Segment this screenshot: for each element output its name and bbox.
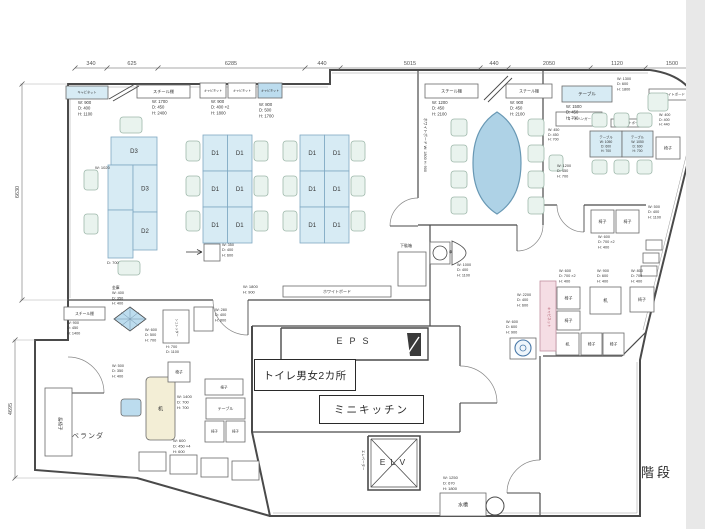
steel-shelf-label: スチール棚 (153, 88, 174, 95)
dim-label: 1120 (611, 61, 623, 67)
annotation: W: 1700D: 450H: 2400 (152, 99, 168, 115)
entry-counter (452, 241, 466, 265)
small-box (170, 455, 197, 474)
door-meeting-west-swing (390, 198, 418, 226)
toilet-label: トイレ男女2カ所 (254, 359, 356, 391)
whiteboard-spare-label: ホワイトボード (323, 288, 351, 294)
annotation: W: 900D: 400 ×2H: 1800 (211, 99, 230, 115)
meeting-table (473, 112, 521, 214)
chair-box-label: 椅子 (565, 294, 573, 300)
desk-D2-label: D2 (141, 229, 149, 235)
table-label: テーブル (218, 405, 234, 411)
dim-label: 1500 (666, 61, 678, 67)
desk-D1-label: D1 (308, 187, 316, 193)
wagon-arrow (186, 250, 202, 255)
chair (528, 197, 544, 214)
chair-box-label: 椅子 (175, 369, 183, 374)
annotation: W: 900D: 450H: 1400 (67, 321, 80, 335)
stool-circle (486, 497, 504, 515)
chair (84, 170, 98, 190)
kitchen-label: ミニキッチン (319, 395, 424, 424)
bench-label: 長椅子 (57, 417, 64, 431)
desk-D1-label: D1 (211, 223, 219, 229)
chair (283, 211, 297, 231)
scan-edge-band (686, 0, 705, 529)
dim-label: 440 (489, 61, 498, 67)
desk-D1-label: D1 (211, 187, 219, 193)
shoe-cabinet (398, 252, 426, 286)
annotation: W: 900D: 400H: 1100 (78, 100, 93, 116)
annotation: W: 400D: 400H: 440 (659, 113, 670, 127)
small-box (643, 253, 659, 263)
dim-label: 340 (86, 61, 95, 67)
small-box (194, 307, 213, 331)
annotation: W: 500D: 400H: 1100 (648, 205, 661, 219)
annotation: W: 1800H: 900 (243, 284, 259, 294)
chair (528, 119, 544, 136)
small-box (646, 240, 662, 250)
dim-label: 2050 (543, 61, 555, 67)
chair-box-label: 椅子 (232, 429, 239, 434)
chair (528, 171, 544, 188)
small-box (641, 266, 657, 276)
dim-label: 6630 (15, 186, 21, 198)
annotation: W: 600D: 600H: 900 (506, 320, 518, 334)
small-box (201, 458, 228, 477)
chair (451, 197, 467, 214)
chair-box-label: 椅子 (599, 218, 607, 224)
water-tank-label: 水槽 (458, 501, 468, 508)
chair (118, 261, 140, 275)
chair-blue (121, 399, 141, 416)
annotation: W: 800D: 700H: 400 (631, 269, 643, 283)
annotation: W: 1300D: 600H: 1800 (617, 77, 631, 91)
annotation: W: 900D: 600H: 400 (597, 269, 609, 283)
desk-D3-label: D3 (141, 187, 149, 193)
desk-D1-label: D1 (333, 223, 341, 229)
annotation: W: 1200D: 450H: 700 (557, 164, 571, 178)
annotation: W: 1200D: 450H: 2100 (432, 100, 448, 116)
veranda-label: ベランダ (72, 431, 132, 441)
door-lower-left-swing (68, 357, 104, 393)
annotation: 金庫W: 400D: 350H: 400 (112, 285, 124, 305)
annotation: W: 500D: 350H: 400 (112, 364, 124, 378)
chair-box-label: 椅子 (565, 317, 573, 323)
washer-drum (515, 340, 531, 356)
desk-box-label: 机 (603, 297, 608, 304)
chair (614, 160, 629, 174)
chair (283, 176, 297, 196)
stairs-label: 階段 (641, 462, 703, 481)
annotation: 下駄箱 (400, 242, 412, 248)
chair (451, 119, 467, 136)
desk-D3-label: D3 (130, 149, 138, 155)
chair (254, 141, 268, 161)
annotation: W: 1000D: 400H: 1100 (457, 263, 471, 277)
chair-box-label: 椅子 (624, 218, 632, 224)
steel-shelf-label: スチール棚 (519, 87, 539, 93)
floorplan-svg: キャビネットスチール棚キャビネットキャビネットキャビネットスチール棚スチール棚テ… (0, 0, 705, 529)
chair (351, 211, 365, 231)
desk-box-label: 机 (566, 340, 570, 346)
small-box (139, 452, 166, 471)
shredder-label: シュレッダー (175, 319, 180, 337)
chair-box-label: 椅子 (638, 296, 646, 302)
desk-D1-label: D1 (236, 223, 244, 229)
door-right-room-swing (557, 205, 584, 232)
chair (528, 145, 544, 162)
chair-box-label: 椅子 (664, 144, 672, 150)
chair (592, 160, 607, 174)
annotation: W: 800D: 500H: 1700 (259, 102, 274, 118)
desk-D1-label: D1 (333, 151, 341, 157)
desk-D1-label: D1 (236, 151, 244, 157)
chair (84, 214, 98, 234)
pink-cabinet-label: キャビネット (547, 307, 552, 327)
door-core-east-swing (460, 366, 497, 403)
annotation: H: 700D: 1100 (166, 345, 179, 354)
desk-D1-label: D1 (333, 187, 341, 193)
chair-box-label: 椅子 (211, 429, 218, 434)
chair (283, 141, 297, 161)
dim-label: 4695 (8, 403, 14, 415)
chair (186, 176, 200, 196)
dim-label: 5015 (404, 61, 416, 67)
table-label: テーブル (578, 91, 596, 98)
steel-shelf-label: スチール棚 (441, 87, 462, 94)
chair (614, 113, 629, 127)
wagon (204, 244, 220, 261)
small-box (232, 461, 259, 480)
annotation: W: 900D: 450H: 2100 (510, 100, 525, 116)
desk-D1-label: D1 (236, 187, 244, 193)
annotation: ホワイトボード W: 1800 H: 900 (423, 118, 428, 172)
annotation: W: 600D: 450 ×4H: 600 (173, 438, 191, 454)
dim-label: 440 (317, 61, 326, 67)
chair (451, 171, 467, 188)
desk (108, 210, 133, 258)
chair (637, 160, 652, 174)
annotation: W: 350D: 400H: 600 (222, 243, 234, 257)
chair (254, 211, 268, 231)
chair (186, 141, 200, 161)
chair (637, 113, 652, 127)
annotation: W: 1250D: 670H: 1800 (443, 475, 459, 491)
cabinet-label: キャビネット (204, 88, 222, 93)
annotation: W: 450D: 450H: 700 (548, 128, 559, 142)
cabinet-label: キャビネット (77, 90, 96, 95)
desk-D1-label: D1 (308, 223, 316, 229)
floor-plan: キャビネットスチール棚キャビネットキャビネットキャビネットスチール棚スチール棚テ… (0, 0, 705, 529)
fridge-hatch (114, 307, 146, 331)
desk-cream-label: 机 (158, 405, 163, 412)
chair (648, 93, 668, 111)
annotation: D: 700 (107, 260, 120, 265)
dim-label: 625 (127, 61, 136, 67)
annotation: W: 600D: 500H: 700 (145, 328, 157, 342)
chair (351, 176, 365, 196)
dim-label: 6285 (225, 61, 237, 67)
desk (108, 165, 133, 210)
chair (451, 145, 467, 162)
chair (254, 176, 268, 196)
annotation: W: 600D: 700 ×2H: 400 (559, 269, 576, 283)
door-stair-swing (507, 460, 540, 493)
annotation: W: 280D: 400H: 800 (215, 308, 227, 322)
annotation: W: 1400D: 700H: 700 (177, 394, 193, 410)
chair (351, 141, 365, 161)
annotation: W: 1020 (95, 165, 111, 170)
annotation: W: 2200D: 400H: 600 (517, 293, 531, 307)
chair-box-label: 椅子 (220, 384, 228, 389)
door-meeting-south-swing (517, 225, 543, 251)
chair-box-label: 椅子 (610, 341, 618, 346)
chair (592, 113, 607, 127)
chair (186, 211, 200, 231)
annotation: エレベーター (361, 450, 366, 471)
eps-label: EPS (320, 336, 392, 346)
cabinet-label: キャビネット (261, 88, 279, 93)
chair (120, 117, 142, 133)
desk-D1-label: D1 (308, 151, 316, 157)
elv-label: ELV (368, 457, 422, 467)
cabinet-label: キャビネット (233, 88, 251, 93)
desk-D1-label: D1 (211, 151, 219, 157)
annotation: W: 600D: 700 ×2H: 400 (598, 235, 615, 249)
brace (109, 84, 139, 101)
chair-box-label: 椅子 (588, 341, 596, 346)
steel-shelf-label: スチール棚 (75, 311, 94, 316)
